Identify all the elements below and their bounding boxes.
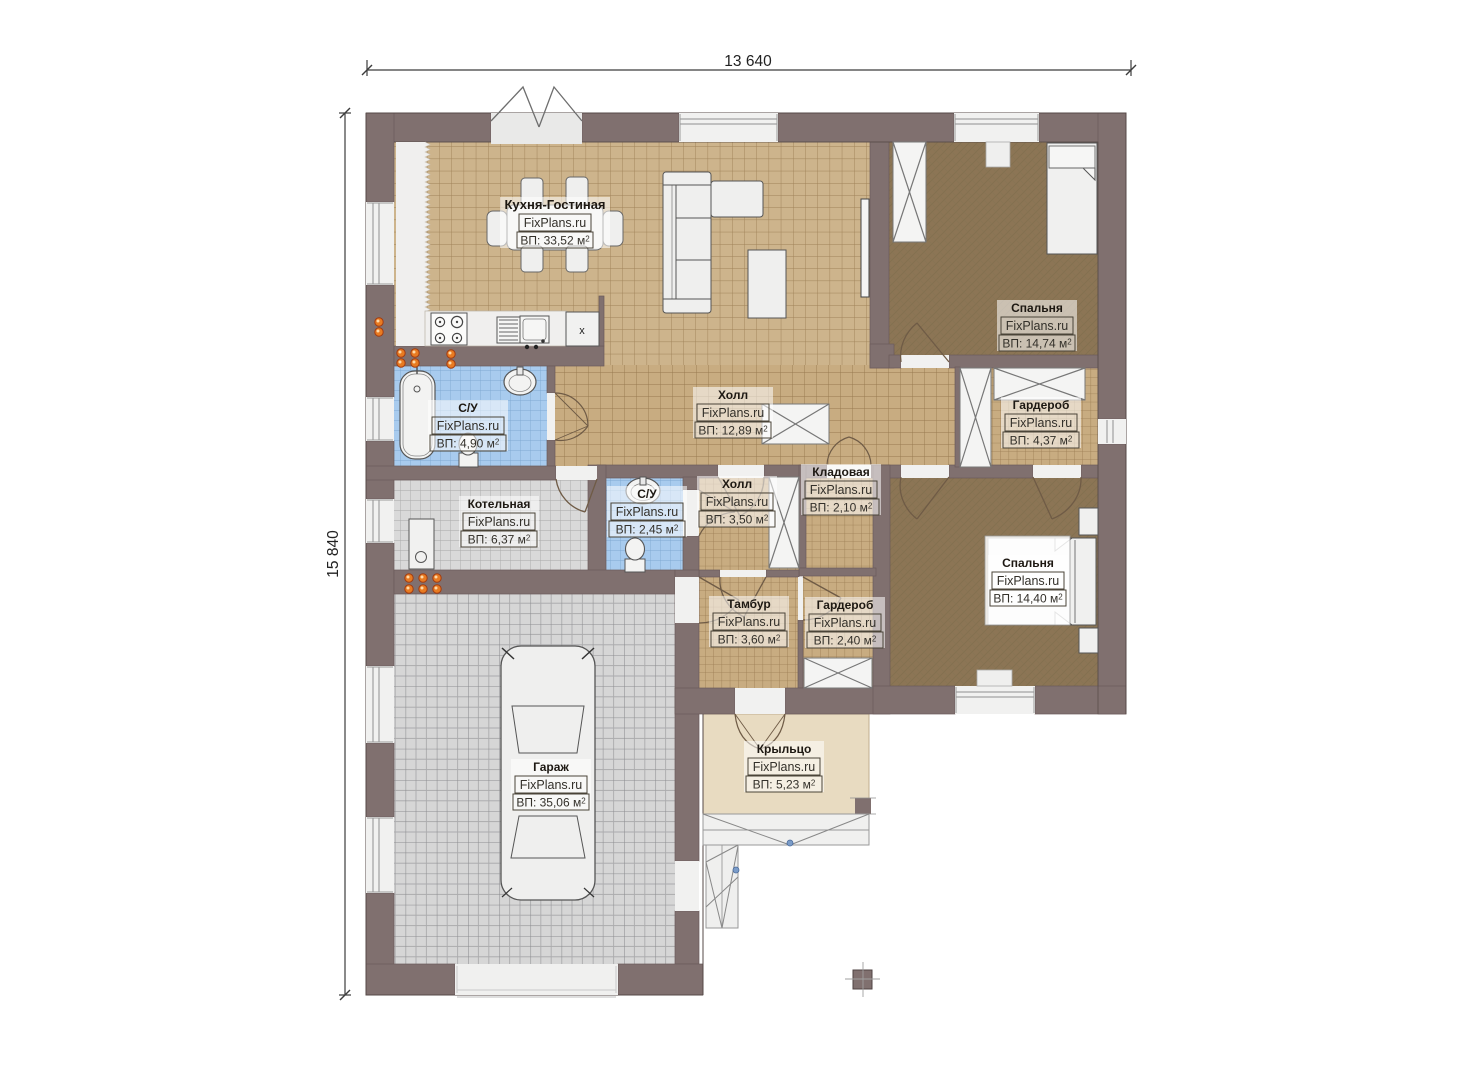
svg-text:15 840: 15 840 — [325, 530, 342, 578]
svg-text:ВП: 2,40 м2: ВП: 2,40 м2 — [814, 634, 877, 648]
svg-text:ВП: 2,45 м2: ВП: 2,45 м2 — [616, 523, 679, 537]
svg-text:FixPlans.ru: FixPlans.ru — [468, 515, 531, 529]
svg-text:FixPlans.ru: FixPlans.ru — [753, 760, 816, 774]
svg-text:FixPlans.ru: FixPlans.ru — [706, 495, 769, 509]
svg-text:FixPlans.ru: FixPlans.ru — [718, 615, 781, 629]
svg-text:ВП: 4,37 м2: ВП: 4,37 м2 — [1010, 434, 1073, 448]
svg-text:Крыльцо: Крыльцо — [757, 742, 812, 756]
svg-text:ВП: 3,60 м2: ВП: 3,60 м2 — [718, 633, 781, 647]
svg-text:Спальня: Спальня — [1002, 556, 1054, 570]
svg-text:Тамбур: Тамбур — [727, 597, 771, 611]
svg-text:FixPlans.ru: FixPlans.ru — [1010, 416, 1073, 430]
svg-text:FixPlans.ru: FixPlans.ru — [1006, 319, 1069, 333]
svg-text:Холл: Холл — [718, 388, 748, 402]
svg-text:С/У: С/У — [637, 487, 657, 501]
svg-text:FixPlans.ru: FixPlans.ru — [437, 419, 500, 433]
svg-text:ВП: 35,06 м2: ВП: 35,06 м2 — [516, 796, 586, 810]
svg-text:Холл: Холл — [722, 477, 752, 491]
svg-text:FixPlans.ru: FixPlans.ru — [810, 483, 873, 497]
svg-text:ВП: 12,89 м2: ВП: 12,89 м2 — [698, 424, 768, 438]
svg-text:13 640: 13 640 — [724, 53, 772, 70]
svg-text:х: х — [579, 325, 585, 337]
svg-text:ВП: 14,74 м2: ВП: 14,74 м2 — [1002, 337, 1072, 351]
svg-text:Гардероб: Гардероб — [817, 598, 874, 612]
svg-text:ВП: 5,23 м2: ВП: 5,23 м2 — [753, 778, 816, 792]
svg-text:Кухня-Гостиная: Кухня-Гостиная — [504, 197, 605, 212]
svg-text:FixPlans.ru: FixPlans.ru — [814, 616, 877, 630]
svg-text:Кладовая: Кладовая — [812, 465, 869, 479]
svg-text:С/У: С/У — [458, 401, 478, 415]
svg-text:ВП: 4,90 м2: ВП: 4,90 м2 — [437, 437, 500, 451]
svg-text:FixPlans.ru: FixPlans.ru — [524, 216, 587, 230]
svg-text:FixPlans.ru: FixPlans.ru — [520, 778, 583, 792]
svg-text:ВП: 6,37 м2: ВП: 6,37 м2 — [468, 533, 531, 547]
svg-text:FixPlans.ru: FixPlans.ru — [997, 574, 1060, 588]
svg-text:Гараж: Гараж — [533, 760, 569, 774]
svg-text:ВП: 2,10 м2: ВП: 2,10 м2 — [810, 501, 873, 515]
svg-text:Гардероб: Гардероб — [1013, 398, 1070, 412]
svg-text:ВП: 3,50 м2: ВП: 3,50 м2 — [706, 513, 769, 527]
svg-text:Котельная: Котельная — [468, 497, 531, 511]
svg-text:ВП: 14,40 м2: ВП: 14,40 м2 — [993, 592, 1063, 606]
svg-text:ВП: 33,52 м2: ВП: 33,52 м2 — [520, 234, 590, 248]
svg-text:FixPlans.ru: FixPlans.ru — [702, 406, 765, 420]
svg-text:FixPlans.ru: FixPlans.ru — [616, 505, 679, 519]
svg-text:Спальня: Спальня — [1011, 301, 1063, 315]
